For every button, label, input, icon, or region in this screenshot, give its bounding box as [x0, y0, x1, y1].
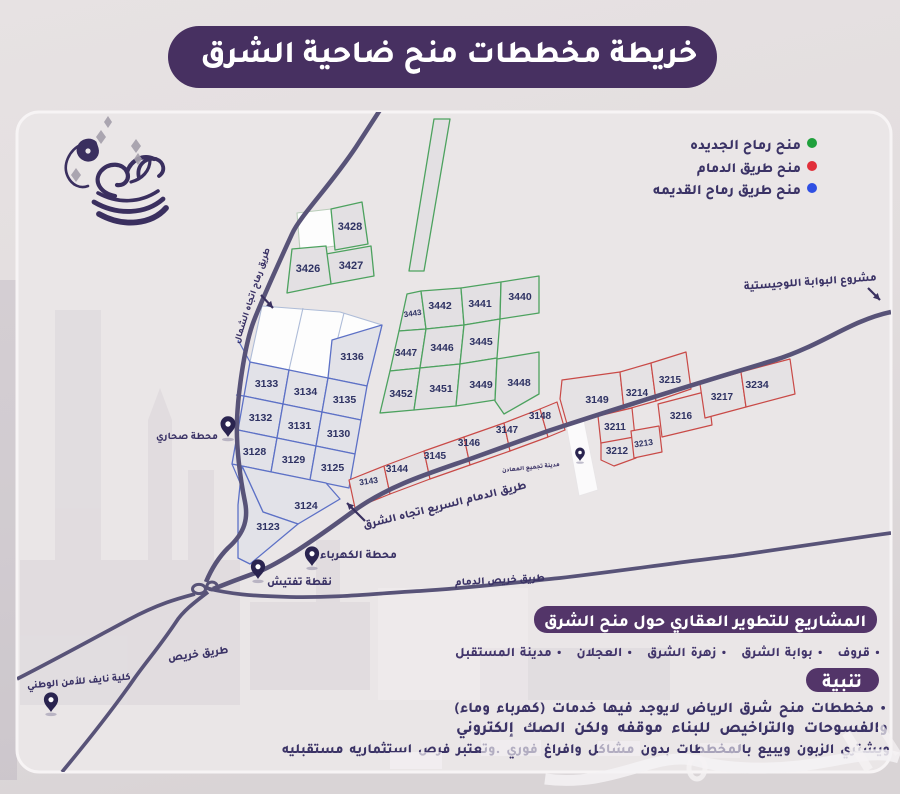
- svg-text:3427: 3427: [339, 260, 363, 272]
- svg-text:3426: 3426: [296, 263, 320, 275]
- svg-text:3132: 3132: [249, 412, 273, 424]
- svg-text:3129: 3129: [282, 454, 306, 466]
- svg-text:3216: 3216: [670, 411, 693, 422]
- svg-text:3145: 3145: [424, 451, 447, 462]
- svg-text:3144: 3144: [386, 464, 409, 475]
- svg-text:3445: 3445: [469, 336, 493, 348]
- svg-text:3135: 3135: [333, 394, 357, 406]
- svg-text:3212: 3212: [606, 446, 629, 457]
- svg-text:3149: 3149: [585, 394, 609, 406]
- svg-text:3446: 3446: [430, 342, 454, 354]
- svg-text:3130: 3130: [327, 428, 351, 440]
- svg-text:3134: 3134: [294, 386, 318, 398]
- svg-text:3448: 3448: [507, 377, 531, 389]
- svg-text:3441: 3441: [468, 298, 492, 310]
- svg-text:3125: 3125: [321, 462, 345, 474]
- svg-text:3136: 3136: [340, 351, 364, 363]
- svg-text:3133: 3133: [255, 378, 279, 390]
- svg-text:3440: 3440: [508, 291, 532, 303]
- svg-text:3214: 3214: [626, 388, 649, 399]
- svg-text:3428: 3428: [338, 221, 362, 233]
- svg-text:3146: 3146: [458, 438, 481, 449]
- svg-text:3451: 3451: [429, 383, 453, 395]
- svg-text:3124: 3124: [294, 500, 318, 512]
- svg-text:3211: 3211: [604, 422, 626, 433]
- svg-text:3123: 3123: [256, 521, 280, 533]
- svg-text:3452: 3452: [389, 388, 413, 400]
- svg-text:3215: 3215: [659, 375, 682, 386]
- svg-text:3447: 3447: [395, 348, 418, 359]
- svg-text:3234: 3234: [745, 379, 769, 391]
- svg-text:3449: 3449: [469, 379, 493, 391]
- svg-text:3131: 3131: [288, 420, 312, 432]
- svg-text:3147: 3147: [496, 425, 519, 436]
- svg-text:3148: 3148: [529, 411, 552, 422]
- svg-text:3128: 3128: [243, 446, 267, 458]
- svg-text:3442: 3442: [428, 300, 452, 312]
- svg-text:3217: 3217: [711, 392, 734, 403]
